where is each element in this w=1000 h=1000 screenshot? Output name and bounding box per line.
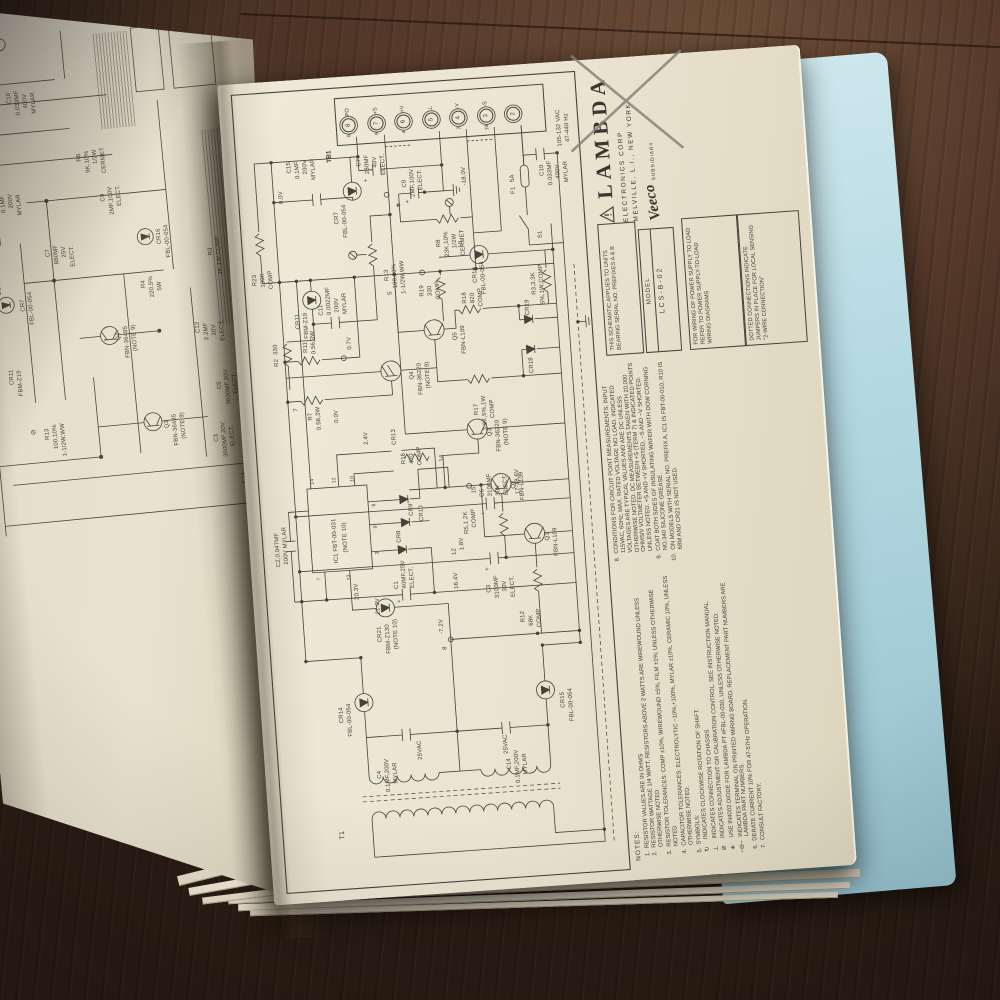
component-label: 220,5%	[148, 276, 156, 298]
component-label: (NOTE 9)	[502, 418, 510, 445]
component-label: 15	[471, 486, 478, 493]
component-label: ELECT.	[509, 575, 517, 597]
component-label: ELECT.	[229, 425, 237, 447]
component-label: MYLAR	[522, 753, 530, 775]
note-symbol: ⊘	[721, 841, 729, 855]
component-label: -7.2V	[438, 619, 445, 634]
terminal-node-number: 4	[401, 130, 408, 139]
component-label: R7	[308, 412, 315, 420]
component-label: C9	[402, 179, 409, 187]
tb1-terminal: 46+V	[395, 93, 412, 140]
component-label: R3	[208, 247, 215, 256]
component-label: 12	[332, 477, 338, 483]
component-label: 2.2MF	[203, 322, 211, 340]
component-label: 280MF	[364, 154, 372, 174]
component-label: 68K	[528, 614, 535, 626]
component-label: ELECT.	[380, 153, 388, 175]
component-label: CR8	[396, 530, 403, 543]
component-label: 30V	[495, 484, 502, 496]
component-label: 100K	[260, 273, 267, 288]
tb1-terminal: 163-S	[477, 87, 494, 134]
note-number: 4.	[682, 848, 696, 858]
tb1-terminal: 24-V	[449, 89, 466, 136]
component-label: 0.7V	[346, 337, 353, 350]
terminal-circle: 7	[369, 116, 384, 131]
component-label: MYLAR	[392, 762, 400, 784]
component-label: IC1 FBT-00-031	[331, 518, 340, 563]
component-label: 8	[442, 646, 449, 650]
component-label: COMP	[268, 270, 276, 289]
component-label: R13	[44, 428, 51, 440]
component-label: COMP	[489, 399, 497, 418]
component-label: 330	[427, 285, 434, 296]
component-label: MYLAR	[30, 92, 38, 114]
component-label: 1.8V	[459, 537, 466, 550]
component-label: FBN-36220	[416, 363, 425, 395]
tb1-terminal: 2	[504, 85, 521, 132]
component-label: FBN-36485	[171, 413, 180, 446]
component-label: Q4	[409, 371, 416, 380]
component-label: 1-1/2W,WW	[399, 260, 408, 294]
component-label: 1K,1W,COMP	[215, 236, 225, 275]
component-label: MYLAR	[341, 292, 349, 314]
note-number: 3.	[667, 849, 681, 859]
note-number: 6.	[753, 843, 760, 852]
component-label: R17	[473, 403, 480, 415]
component-label: 880MF	[53, 245, 61, 265]
component-label: 200V	[334, 298, 341, 313]
left-notes-fine-print	[91, 30, 136, 129]
component-label: CR15	[560, 692, 567, 708]
component-label: CR10	[418, 505, 425, 521]
component-label: 10	[350, 476, 356, 482]
component-label: +	[485, 567, 492, 571]
terminal-name: +S	[372, 102, 379, 114]
component-label: FBL-00-054	[346, 703, 355, 737]
component-label: 5	[387, 291, 394, 295]
component-label: 40MF,25V	[400, 560, 408, 589]
component-label: R3,3.3K	[530, 272, 538, 295]
component-label: 0.1MF	[0, 195, 8, 213]
terminal-circle: 2	[506, 106, 521, 121]
component-label: FBN-L109	[460, 325, 468, 354]
component-label: 21.0V	[375, 598, 382, 615]
component-label: +	[405, 199, 412, 203]
tb1-terminal: 5⊥	[422, 91, 439, 138]
component-label: 14	[310, 479, 316, 485]
component-label: C9	[100, 193, 107, 202]
component-label: 5W	[157, 281, 164, 291]
component-label: Q4	[115, 332, 122, 341]
component-label: R16	[401, 453, 408, 465]
component-label: 30V	[502, 580, 509, 592]
component-label: 0.56,3W	[315, 406, 323, 430]
terminal-name: +V	[399, 100, 406, 112]
tb1-terminal: 68PO	[340, 97, 357, 144]
component-label: C4	[377, 770, 384, 778]
note-number: 9.	[656, 553, 670, 563]
component-label: 3600MF,20V	[223, 369, 233, 405]
component-label: 0.1MF	[294, 161, 302, 179]
terminal-name: -S	[481, 95, 488, 107]
component-label: CERMET	[99, 147, 108, 174]
terminal-node-number: 16	[483, 124, 490, 133]
component-label: ELECT.	[115, 184, 123, 206]
terminal-name: -V	[454, 96, 461, 108]
component-label: C7	[356, 158, 363, 166]
component-label: 330	[273, 344, 280, 355]
component-label: 25VAC	[417, 740, 425, 760]
component-label: R13	[384, 269, 391, 281]
terminal-name: PO	[344, 104, 351, 116]
component-label: FBL-00-054	[341, 204, 350, 238]
component-label: 200V	[8, 193, 16, 208]
component-label: Q2	[511, 480, 518, 489]
component-label: FBL-00-054	[567, 688, 576, 722]
terminal-name	[512, 93, 513, 105]
component-label: 2MF,100V	[107, 186, 116, 215]
terminal-circle: 8	[341, 118, 356, 133]
component-label: FBM-Z130	[385, 624, 393, 654]
tb1-terminal: 97+S	[367, 95, 384, 142]
component-label: T1	[339, 831, 347, 840]
component-label: -18.0V	[461, 167, 469, 186]
warning-triangle-icon	[599, 206, 615, 224]
component-label: 100,10%	[391, 263, 399, 288]
terminal-node-number	[432, 129, 433, 138]
component-label: C11	[318, 304, 325, 315]
component-label: ELECT.	[502, 474, 510, 496]
terminal-circle: 6	[396, 114, 411, 129]
note-symbol: ↻	[704, 842, 712, 856]
component-label: COMP	[0, 277, 4, 296]
note-symbol: ∗	[729, 840, 737, 854]
component-label: ELECT.	[69, 245, 77, 267]
component-label: 3100MF	[493, 575, 501, 598]
component-label: CR7	[20, 299, 27, 312]
component-label: C1	[394, 581, 401, 589]
component-label: FBN-L109	[518, 471, 526, 500]
component-label: 0.1MF,200V	[514, 749, 523, 783]
component-label: MYLAR	[16, 194, 24, 216]
component-label: R5,1.2K	[463, 511, 471, 534]
component-label: FBM-Z19	[303, 312, 311, 338]
notes-block: NOTES: 1.RESISTOR VALUES ARE IN OHMS2.RE…	[616, 564, 770, 861]
component-label: 5A	[509, 174, 516, 182]
notes-list: 1.RESISTOR VALUES ARE IN OHMS2.RESISTOR …	[625, 564, 768, 860]
component-label: 1/2W	[92, 149, 100, 164]
component-label: CR16	[156, 228, 164, 244]
component-label: (NOTE 10)	[392, 619, 400, 650]
component-label: C12	[195, 321, 202, 333]
conditions-block: 8.CONDITIONS FOR CIRCUIT POINT MEASUREME…	[601, 359, 686, 565]
component-label: 9K,10%	[84, 151, 92, 173]
component-label: 7	[317, 577, 322, 580]
component-label: +	[397, 599, 404, 603]
terminal-node-number: 2	[456, 126, 463, 135]
component-label: 5%,1W,COMP	[538, 264, 547, 305]
component-label: R12	[520, 611, 527, 623]
component-label: 3	[375, 551, 380, 554]
component-label: CR9	[408, 503, 415, 516]
component-label: 0.56,3W	[310, 331, 318, 355]
component-label: ELECT.	[417, 169, 425, 191]
component-label: 820	[470, 292, 477, 303]
component-label: C3	[486, 584, 493, 592]
component-label: CERMET	[459, 229, 467, 256]
component-label: 3100MF	[486, 473, 494, 496]
component-label: FBL-00-054	[479, 261, 488, 295]
component-label: Q1	[545, 532, 552, 541]
component-label: 25VAC	[503, 734, 511, 754]
component-label: COMP	[471, 509, 479, 528]
component-label: ⊘	[30, 429, 38, 436]
component-label: CR19	[524, 299, 531, 315]
component-label: 0.0V	[278, 191, 285, 204]
component-label: 40V	[372, 156, 379, 168]
component-label: COMP	[435, 281, 443, 300]
component-label: Q3	[164, 420, 171, 429]
conditions-list: 8.CONDITIONS FOR CIRCUIT POINT MEASUREME…	[601, 359, 685, 565]
component-label: CR21	[377, 626, 384, 642]
component-label: 9	[374, 525, 379, 528]
component-label: 3600MF,20V	[220, 421, 230, 457]
component-label: ∗	[395, 202, 403, 209]
component-label: 2MF,100V	[409, 169, 417, 198]
component-label: 0.0V	[333, 410, 340, 423]
component-label: 25V	[61, 246, 68, 258]
component-label: 13	[347, 574, 353, 580]
component-label: C7	[45, 249, 52, 258]
component-label: R18	[462, 292, 469, 304]
terminal-node-number: 9	[374, 132, 381, 141]
component-label: 1/2W	[451, 233, 458, 248]
component-label: +	[481, 511, 488, 515]
component-label: R2	[274, 359, 281, 367]
note-symbol: −⊖−	[738, 839, 753, 854]
terminal-circle: 3	[478, 108, 493, 123]
component-label: C15	[286, 162, 293, 174]
component-label: 12	[451, 548, 458, 555]
note-number: 1.	[645, 851, 652, 860]
terminal-name: ⊥	[426, 98, 433, 110]
component-label: 0.1MF,200V	[384, 758, 393, 792]
component-label: 1-1/2W,WW	[60, 423, 69, 457]
component-label: C6	[479, 489, 486, 497]
component-label: (NOTE 9)	[131, 324, 140, 351]
photo-scene: CR11FBM-Z19⊘R13100,10%1-1/2W,WWCR7FBL-00…	[0, 0, 1000, 1000]
pencil-x-mark	[553, 40, 701, 169]
component-label: FBM-Z19	[16, 370, 25, 397]
component-label: 0.033MF	[547, 160, 555, 185]
component-label: CR11	[295, 314, 302, 330]
component-label: 100,10%	[52, 424, 61, 449]
component-label: R8	[76, 153, 83, 162]
component-label: (NOTE 9)	[179, 412, 188, 439]
component-label: FBL-00-054	[27, 291, 36, 325]
component-label: R23	[252, 274, 259, 286]
component-label: R19	[419, 285, 426, 297]
note-number: 7.	[761, 843, 768, 852]
component-label: COMP	[536, 608, 544, 627]
component-label: 8	[372, 503, 377, 506]
component-label: 20V	[211, 324, 218, 336]
right-page: T125VAC25VACC40.1MF,200VMYLARC140.1MF,20…	[217, 45, 857, 906]
note-symbol: ⊥	[712, 841, 720, 855]
component-label: R4	[140, 280, 147, 289]
component-label: 470	[409, 453, 416, 464]
component-label: ELECT.	[409, 566, 417, 588]
component-label: C10	[539, 164, 546, 176]
dotted-note-box: DOTTED CONNECTIONS INDICATE JUMPERS IN P…	[737, 210, 808, 346]
component-label: 23K,10%	[443, 231, 451, 257]
component-label: MYLAR	[310, 158, 318, 180]
component-label: R11	[303, 342, 310, 353]
component-label: FBN-36485	[123, 326, 132, 359]
component-label: C10	[6, 92, 13, 104]
note-number: 2.	[652, 850, 666, 860]
component-label: C3	[213, 433, 220, 442]
component-label: C14	[506, 758, 513, 770]
component-label: 14	[439, 454, 446, 461]
terminal-circle: 5	[423, 112, 438, 127]
component-label: 16.4V	[453, 572, 460, 589]
component-label: 0.0022MF	[325, 287, 333, 316]
terminal-node-number: 6	[346, 134, 353, 143]
component-label: FBN-36220	[495, 419, 504, 451]
component-label: CR16	[472, 267, 479, 283]
component-label: CR14	[338, 707, 345, 723]
component-label: F1	[510, 186, 517, 194]
component-label: +	[363, 178, 370, 182]
component-label: (NOTE 10)	[341, 522, 349, 553]
component-label: 200V MYLAR	[282, 527, 291, 565]
schematic-sheet: T125VAC25VACC40.1MF,200VMYLARC140.1MF,20…	[221, 46, 852, 904]
component-label: CR11	[8, 369, 16, 385]
terminal-node-number	[514, 123, 515, 132]
component-label: R8	[436, 239, 443, 247]
note-number: 10.	[671, 552, 685, 562]
component-label: FBL-00-054	[163, 224, 172, 258]
component-label: C6	[216, 381, 223, 390]
terminal-circle: 4	[451, 110, 466, 125]
wiring-note-box: FOR WIRING OF POWER SUPPLY TO LOAD REFER…	[681, 214, 746, 350]
component-label: (NOTE 9)	[424, 361, 432, 388]
component-label: S1	[537, 230, 544, 238]
component-label: 0.033MF	[14, 90, 23, 115]
component-label: 400V	[22, 94, 30, 109]
component-label: COMP	[416, 446, 424, 465]
component-label: ELECT.	[219, 319, 227, 341]
component-label: 20.3V	[354, 583, 361, 600]
component-label: 2.4V	[363, 432, 370, 445]
component-label: CR13	[391, 429, 398, 445]
component-label: CR18	[528, 357, 535, 373]
component-label: CR7	[334, 212, 341, 225]
note-number: 5.	[696, 847, 703, 856]
tb1-label: TB1	[325, 150, 333, 163]
component-label: Q5	[452, 332, 459, 341]
component-label: 7	[293, 408, 300, 412]
component-label: 200V	[302, 160, 309, 175]
component-label: FBN-L109	[552, 527, 560, 556]
